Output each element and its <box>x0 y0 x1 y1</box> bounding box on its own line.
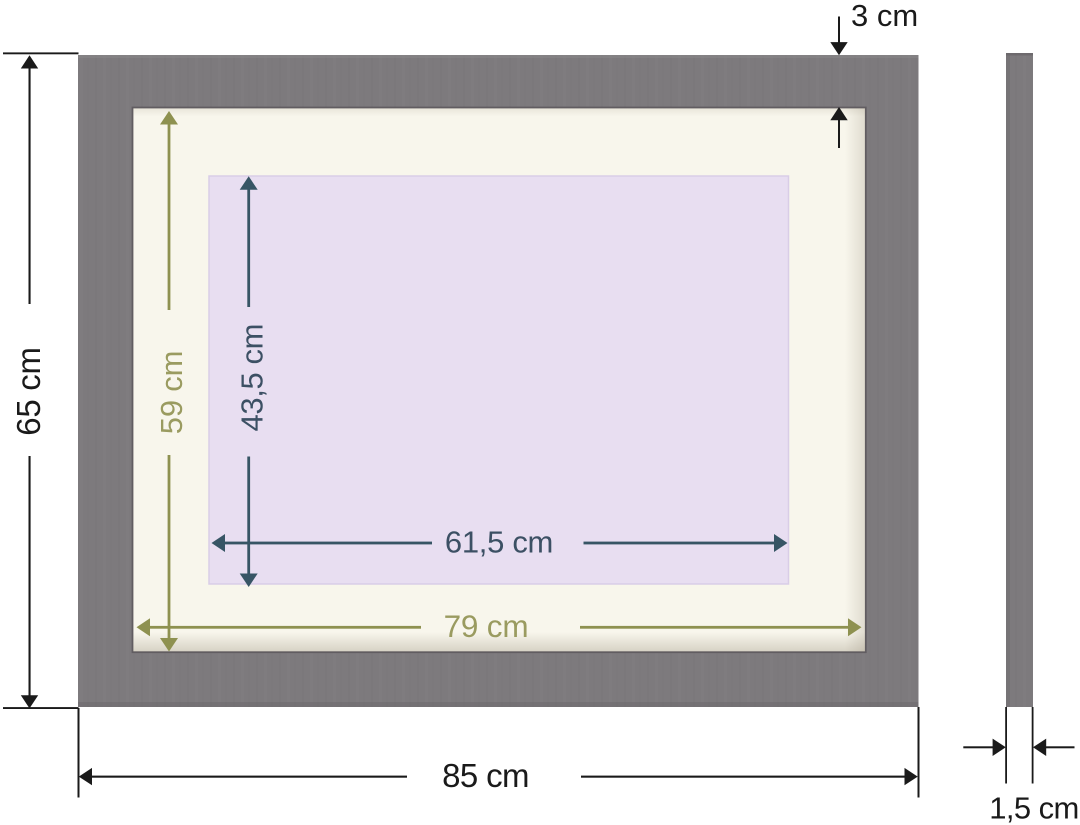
svg-text:3 cm: 3 cm <box>851 0 918 33</box>
svg-text:85 cm: 85 cm <box>442 757 529 794</box>
svg-text:79 cm: 79 cm <box>444 608 529 644</box>
svg-text:59 cm: 59 cm <box>154 351 189 434</box>
svg-text:43,5 cm: 43,5 cm <box>234 324 269 431</box>
svg-text:65 cm: 65 cm <box>10 347 47 435</box>
svg-text:61,5 cm: 61,5 cm <box>445 525 553 560</box>
svg-text:1,5 cm: 1,5 cm <box>989 791 1078 825</box>
